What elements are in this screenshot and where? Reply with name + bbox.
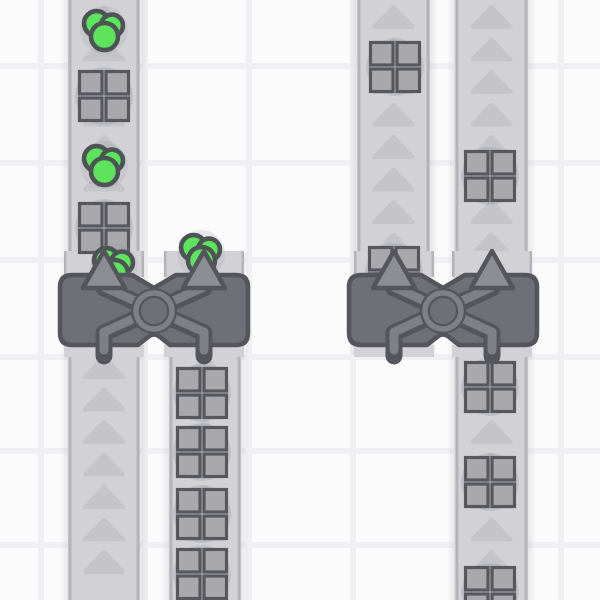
item-shape-square [461, 147, 519, 205]
item-shape-square [173, 485, 231, 543]
item-shape-square [461, 358, 519, 416]
item-shape-square [366, 38, 424, 96]
item-shape-square [173, 423, 231, 481]
game-viewport[interactable] [0, 0, 600, 600]
item-shape-square [75, 67, 133, 125]
game-canvas[interactable] [0, 0, 600, 600]
item-shape-square [173, 545, 231, 600]
item-shape-square [461, 563, 519, 600]
item-shape-circle [80, 141, 128, 189]
item-shape-square [173, 364, 231, 422]
item-shape-circle [80, 6, 128, 54]
item-shape-square [461, 453, 519, 511]
